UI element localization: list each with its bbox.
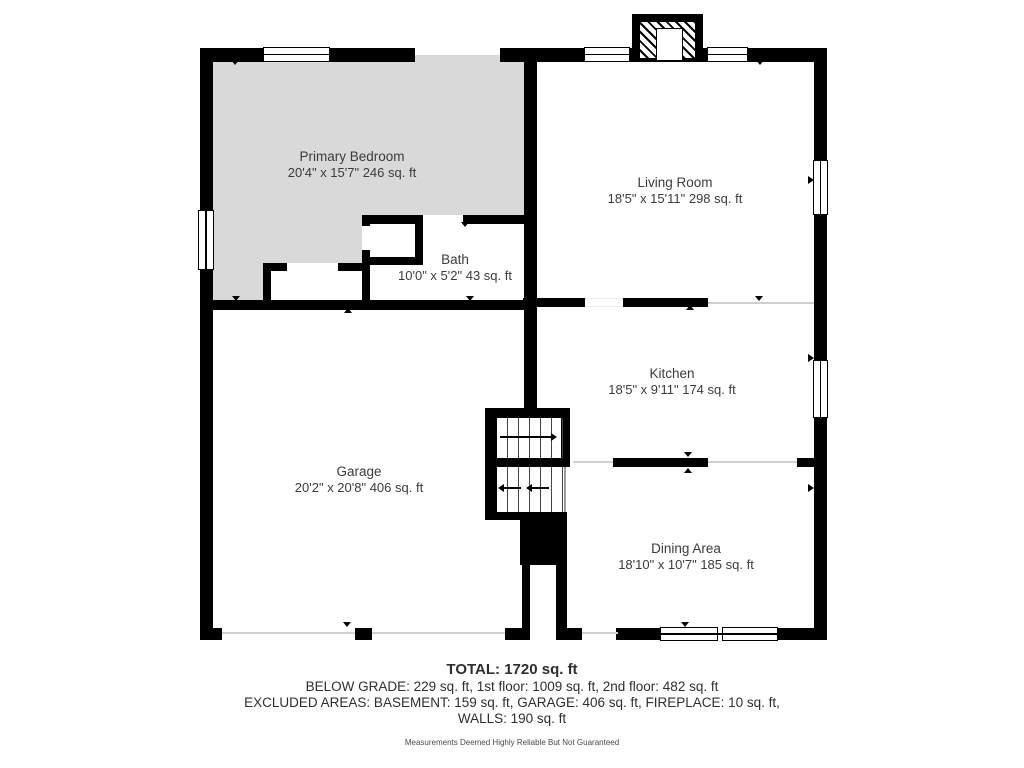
room-dims: 18'10" x 10'7" 185 sq. ft: [566, 557, 806, 573]
door-marker: [344, 308, 352, 313]
bedroom-closet-wall: [263, 263, 287, 271]
room-label-garage: Garage 20'2" x 20'8" 406 sq. ft: [239, 464, 479, 496]
room-name: Primary Bedroom: [232, 149, 472, 165]
basement-stair-side: [556, 565, 567, 628]
door-marker: [684, 468, 692, 473]
wall-segment: [500, 48, 588, 62]
garage-door-line: [372, 632, 505, 634]
window: [813, 160, 828, 215]
room-name: Living Room: [555, 175, 795, 191]
excluded-areas-text: EXCLUDED AREAS: BASEMENT: 159 sq. ft, GA…: [0, 695, 1024, 711]
room-name: Bath: [360, 252, 550, 268]
door-marker: [232, 296, 240, 301]
stair-arrow-head: [551, 433, 557, 441]
room-label-primary-bedroom: Primary Bedroom 20'4" x 15'7" 246 sq. ft: [232, 149, 472, 181]
wall-segment: [775, 628, 827, 640]
basement-stair-side: [522, 565, 530, 628]
wall-segment: [325, 48, 415, 62]
room-label-bath: Bath 10'0" x 5'2" 43 sq. ft: [360, 252, 550, 284]
door-marker: [686, 305, 694, 310]
door-marker: [681, 622, 689, 627]
room-label-dining-area: Dining Area 18'10" x 10'7" 185 sq. ft: [566, 541, 806, 573]
living-kitchen-wall: [523, 298, 585, 307]
door-marker: [466, 296, 474, 301]
living-kitchen-wall: [623, 298, 708, 307]
window: [660, 627, 778, 641]
wall-segment: [505, 628, 530, 640]
floor-plan: Primary Bedroom 20'4" x 15'7" 246 sq. ft…: [0, 0, 1024, 768]
door-marker: [684, 452, 692, 457]
door-marker: [808, 484, 814, 492]
stair-arrow-head: [498, 484, 504, 492]
doorway-line: [582, 632, 618, 634]
kitchen-dining-wall: [613, 458, 708, 467]
window: [707, 47, 748, 62]
door-marker: [461, 222, 469, 227]
room-label-living-room: Living Room 18'5" x 15'11" 298 sq. ft: [555, 175, 795, 207]
room-name: Kitchen: [552, 366, 792, 382]
room-dims: 10'0" x 5'2" 43 sq. ft: [360, 268, 550, 284]
stair-wall: [485, 408, 497, 520]
stair-wall: [485, 512, 525, 520]
room-dims: 20'2" x 20'8" 406 sq. ft: [239, 480, 479, 496]
room-dims: 18'5" x 9'11" 174 sq. ft: [552, 382, 792, 398]
wall-segment: [814, 55, 827, 640]
stair-wall: [485, 408, 570, 418]
room-label-kitchen: Kitchen 18'5" x 9'11" 174 sq. ft: [552, 366, 792, 398]
bath-wall: [362, 215, 422, 224]
wall-segment: [200, 48, 213, 640]
door-marker: [808, 354, 814, 362]
room-dims: 18'5" x 15'11" 298 sq. ft: [555, 191, 795, 207]
stair-edge-line: [564, 467, 566, 512]
door-marker: [755, 296, 763, 301]
fireplace-firebox: [656, 28, 683, 61]
summary-footer: TOTAL: 1720 sq. ft BELOW GRADE: 229 sq. …: [0, 660, 1024, 747]
room-dims: 20'4" x 15'7" 246 sq. ft: [232, 165, 472, 181]
bath-closet-wall: [362, 215, 370, 226]
window: [584, 47, 630, 62]
total-area-text: TOTAL: 1720 sq. ft: [0, 660, 1024, 679]
walls-area-text: WALLS: 190 sq. ft: [0, 711, 1024, 727]
room-name: Garage: [239, 464, 479, 480]
door-marker: [756, 60, 764, 65]
door-marker: [231, 60, 239, 65]
bedroom-living-divider-wall: [524, 55, 537, 410]
stair-direction-arrow: [500, 436, 552, 438]
wall-segment: [200, 628, 222, 640]
opening-line: [573, 461, 613, 463]
stair-arrow-head: [526, 484, 532, 492]
opening-line: [708, 302, 814, 304]
door-marker: [343, 622, 351, 627]
window: [813, 360, 828, 418]
opening-line: [708, 461, 797, 463]
wall-segment: [355, 628, 372, 640]
bath-wall: [463, 215, 525, 224]
kitchen-dining-wall: [797, 458, 817, 467]
garage-door-line: [222, 632, 355, 634]
wall-segment: [556, 628, 582, 640]
room-name: Dining Area: [566, 541, 806, 557]
window: [198, 210, 214, 270]
floor-areas-text: BELOW GRADE: 229 sq. ft, 1st floor: 1009…: [0, 679, 1024, 695]
stair-direction-arrow: [503, 487, 521, 489]
stair-direction-arrow: [531, 487, 549, 489]
disclaimer-text: Measurements Deemed Highly Reliable But …: [0, 738, 1024, 747]
pass-through-opening: [585, 298, 623, 307]
basement-stair-block: [520, 512, 567, 565]
door-marker: [808, 176, 814, 184]
window: [263, 47, 330, 62]
stair-mid-wall: [497, 458, 563, 467]
